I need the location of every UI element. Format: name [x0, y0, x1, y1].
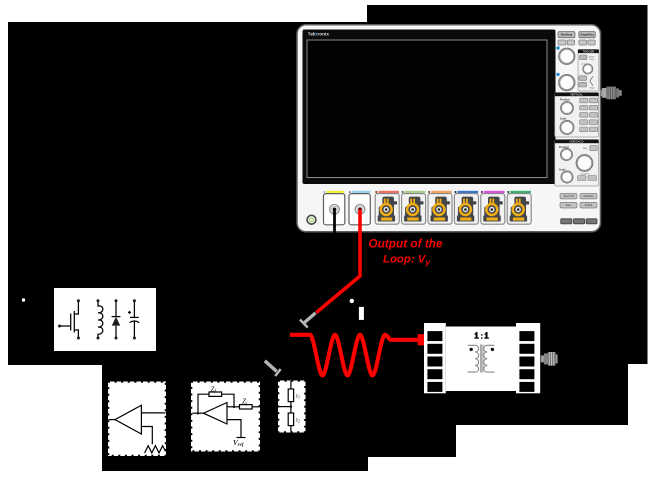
svg-text:Touch Off: Touch Off	[563, 195, 574, 198]
svg-text:Standard: Standard	[581, 172, 591, 175]
svg-text:Position: Position	[560, 99, 570, 102]
svg-text:Run/Stop: Run/Stop	[561, 33, 573, 37]
svg-text:z1: z1	[295, 393, 300, 399]
svg-text:Output of the: Output of the	[369, 237, 443, 251]
svg-text:TRIGGER: TRIGGER	[582, 49, 594, 53]
svg-text:Tektronix: Tektronix	[308, 31, 330, 36]
svg-text:Single/Seq: Single/Seq	[580, 33, 594, 37]
svg-text:Loop: Vy: Loop: Vy	[383, 253, 430, 267]
svg-text:Trig'd: Trig'd	[589, 58, 595, 61]
svg-text:Mode: Mode	[589, 57, 595, 59]
svg-text:Default: Default	[585, 204, 593, 207]
svg-text:Slope: Slope	[590, 88, 596, 90]
svg-text:Multiview: Multiview	[584, 195, 594, 198]
svg-text:z2: z2	[295, 417, 301, 423]
svg-text:Save: Save	[566, 204, 572, 207]
svg-text:HORZ/ACQ: HORZ/ACQ	[570, 140, 584, 144]
svg-text:VERTICAL: VERTICAL	[570, 93, 583, 97]
svg-text:Scale: Scale	[560, 118, 567, 121]
